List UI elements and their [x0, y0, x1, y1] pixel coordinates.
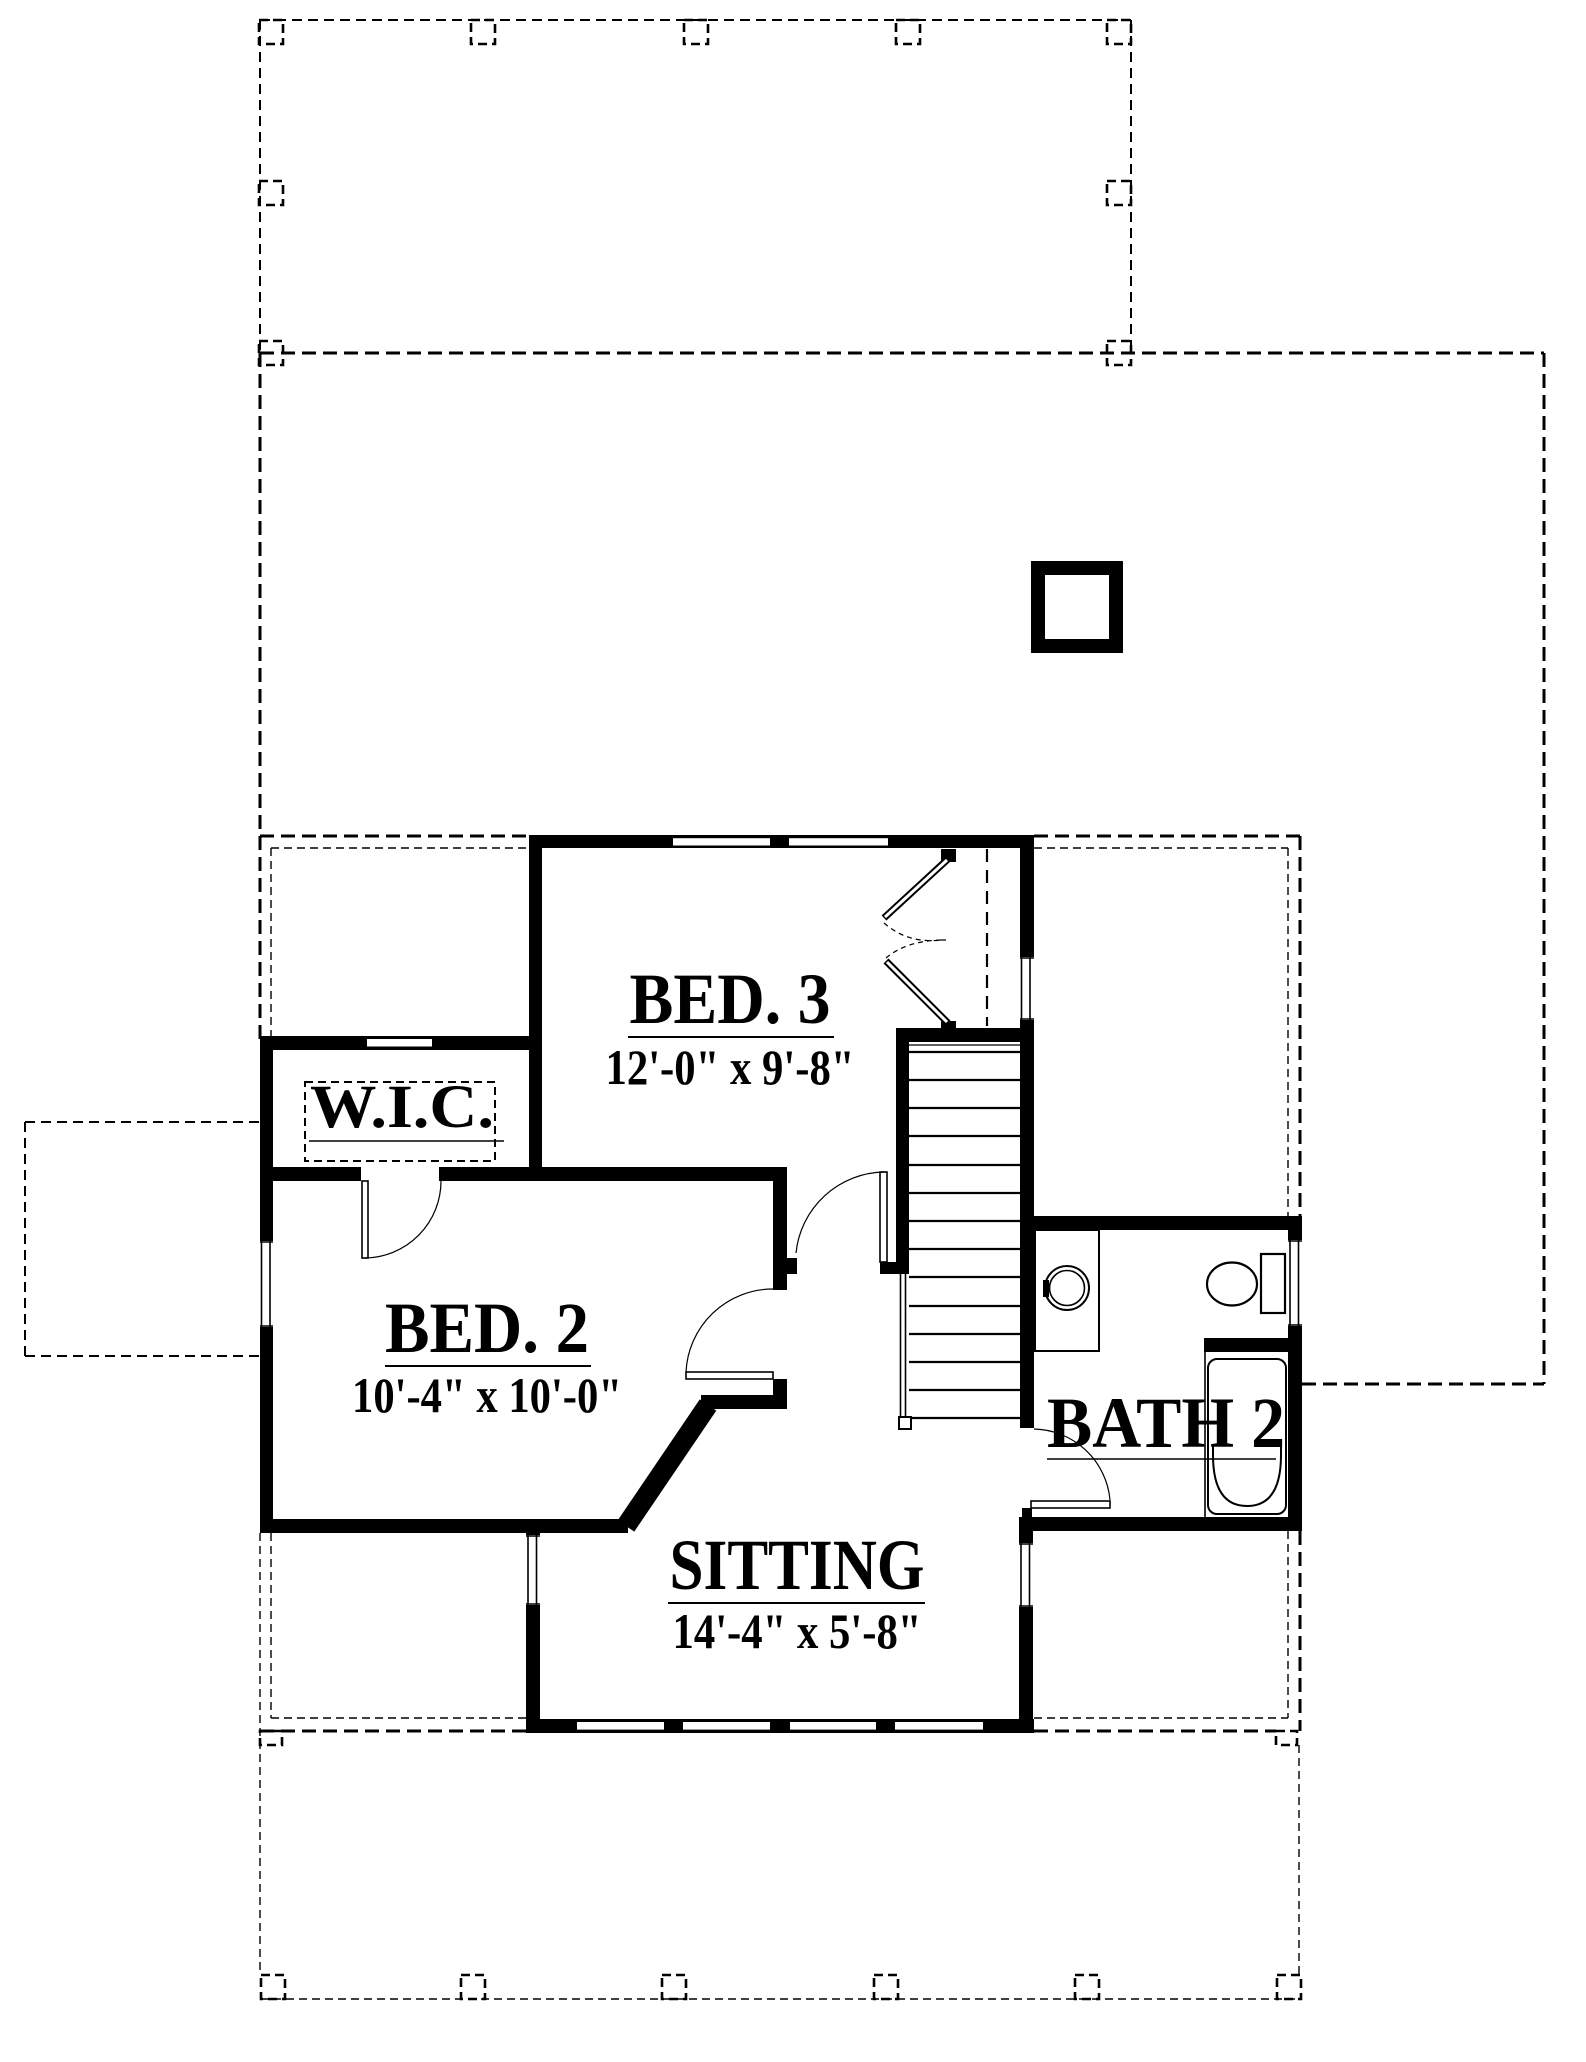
svg-text:BATH 2: BATH 2 — [1047, 1383, 1285, 1463]
svg-text:BED. 3: BED. 3 — [630, 959, 831, 1039]
svg-text:14'-4" x 5'-8": 14'-4" x 5'-8" — [673, 1603, 922, 1659]
svg-text:BED. 2: BED. 2 — [385, 1288, 589, 1368]
svg-text:12'-0" x 9'-8": 12'-0" x 9'-8" — [606, 1039, 855, 1095]
svg-text:10'-4" x 10'-0": 10'-4" x 10'-0" — [352, 1367, 622, 1423]
svg-text:SITTING: SITTING — [670, 1525, 925, 1605]
svg-text:W.I.C.: W.I.C. — [310, 1074, 494, 1141]
